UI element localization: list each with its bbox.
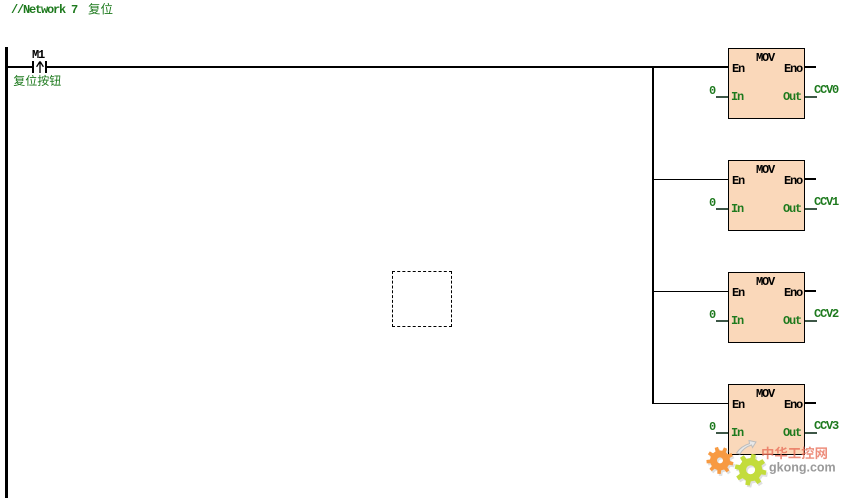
svg-text:gkong.com: gkong.com [769, 461, 836, 475]
